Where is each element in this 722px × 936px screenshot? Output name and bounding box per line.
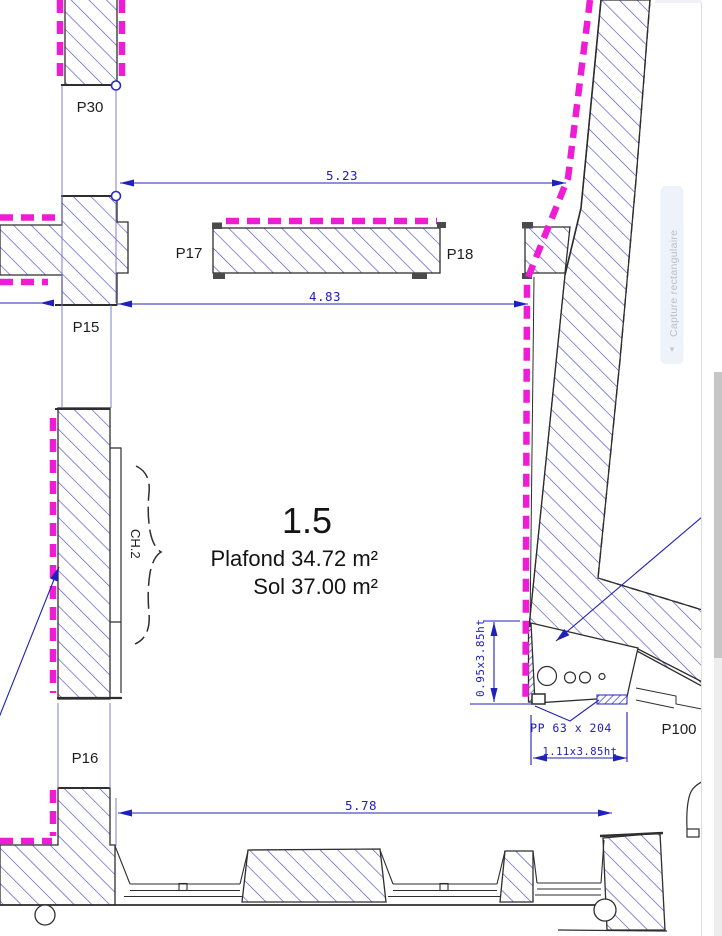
dim-door-width: 1.11x3.85ht [542,746,617,758]
facade-post-right [594,899,616,921]
room-ceiling-area: Plafond 34.72 m² [210,546,378,571]
facade-post-left [35,905,55,925]
dim-door-height: 0.95x3.85ht [474,619,487,697]
scrollbar-thumb[interactable] [714,372,722,658]
wall-ch2 [58,408,110,699]
walls-hatched [0,0,722,930]
label-p17: P17 [176,245,203,262]
chevron-down-icon: ▾ [670,345,675,355]
capture-rectangulaire-label: Capture rectangulaire [668,230,680,337]
label-p18: P18 [447,246,474,263]
label-p15: P15 [73,319,100,336]
wall-bottom-left-corner [0,788,115,905]
room-number: 1.5 [282,500,332,541]
pp-threshold [597,695,627,704]
wall-p17 [213,228,440,273]
floor-plan-canvas: 5.23 4.83 5.78 0.95x3.85ht PP 63 x 204 1… [0,0,722,936]
wall-left-junction [0,196,128,305]
dim-door-ref: PP 63 x 204 [530,721,612,735]
toolbar-edge [655,0,702,3]
dim-top: 5.23 [326,168,358,183]
dim-middle: 4.83 [309,289,341,304]
room-floor-area: Sol 37.00 m² [253,574,378,599]
dim-bottom: 5.78 [345,798,377,813]
label-p30: P30 [77,99,104,116]
label-p100: P100 [661,721,696,738]
capture-rectangulaire-button[interactable]: Capture rectangulaire ▾ [661,186,684,364]
room-info: 1.5 Plafond 34.72 m² Sol 37.00 m² [210,500,378,599]
wall-bottom-pier3 [500,851,533,902]
label-p16: P16 [72,750,99,767]
viewer-chrome: Capture rectangulaire ▾ [655,0,722,936]
floorplan-screenshot: 5.23 4.83 5.78 0.95x3.85ht PP 63 x 204 1… [0,0,722,936]
label-ch2: CH.2 [128,529,143,559]
wall-top-left [65,0,117,85]
wall-bottom-pier2 [242,849,386,902]
ch2-reveal [110,448,121,693]
